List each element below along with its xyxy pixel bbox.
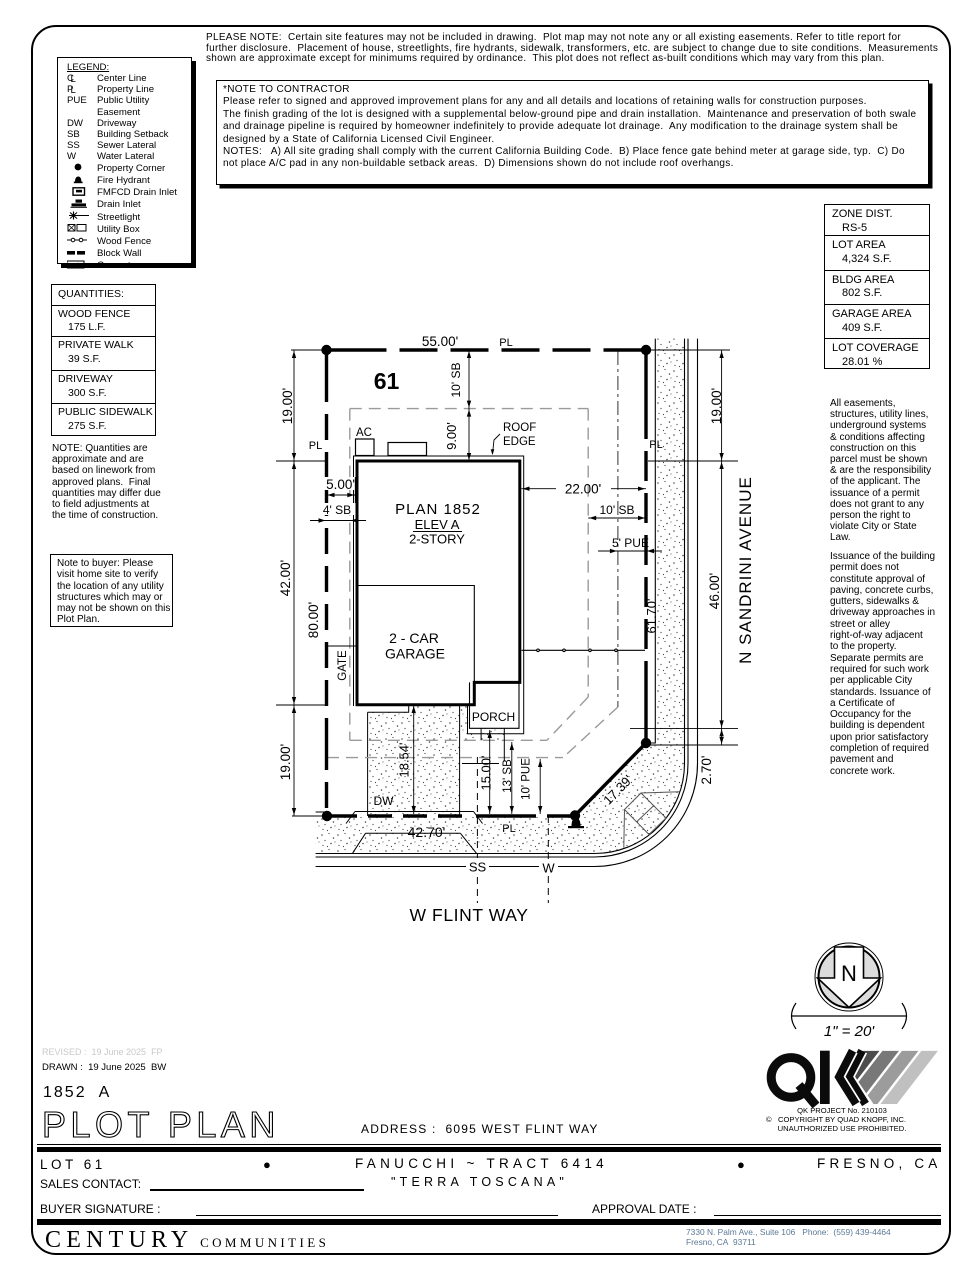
svg-text:GARAGE: GARAGE — [385, 646, 445, 662]
svg-text:GATE: GATE — [337, 650, 349, 681]
svg-text:PL: PL — [499, 337, 512, 349]
svg-text:15.00': 15.00' — [479, 755, 494, 790]
svg-text:19.00': 19.00' — [278, 744, 293, 780]
svg-text:18.54': 18.54' — [397, 742, 412, 777]
svg-text:ELEV A: ELEV A — [415, 517, 460, 532]
svg-text:2.70': 2.70' — [699, 756, 714, 785]
svg-text:10' SB: 10' SB — [449, 363, 463, 398]
svg-text:PORCH: PORCH — [472, 710, 515, 724]
svg-text:PL: PL — [502, 823, 515, 835]
svg-text:4' SB: 4' SB — [323, 503, 351, 517]
svg-text:1" = 20': 1" = 20' — [824, 1023, 875, 1040]
svg-text:PL: PL — [309, 440, 322, 452]
svg-text:5' PUE: 5' PUE — [612, 536, 649, 550]
svg-text:PL: PL — [649, 439, 662, 451]
svg-text:W: W — [542, 861, 555, 876]
svg-text:55.00': 55.00' — [422, 334, 458, 349]
svg-text:80.00': 80.00' — [306, 602, 321, 638]
svg-text:22.00': 22.00' — [565, 482, 601, 497]
svg-text:61.70': 61.70' — [644, 598, 659, 633]
svg-text:2-STORY: 2-STORY — [409, 532, 465, 547]
svg-text:DW: DW — [374, 794, 395, 808]
svg-text:13' SB: 13' SB — [502, 759, 514, 793]
svg-text:EDGE: EDGE — [503, 436, 536, 448]
svg-text:N: N — [841, 961, 857, 986]
svg-text:N SANDRINI AVENUE: N SANDRINI AVENUE — [736, 476, 755, 664]
svg-text:61: 61 — [374, 368, 400, 394]
svg-text:19.00': 19.00' — [709, 388, 724, 424]
svg-text:19.00': 19.00' — [280, 388, 295, 424]
svg-text:10' SB: 10' SB — [600, 503, 635, 517]
svg-text:SS: SS — [469, 860, 487, 875]
svg-text:AC: AC — [356, 427, 372, 439]
svg-text:W FLINT WAY: W FLINT WAY — [409, 905, 528, 925]
svg-text:9.00': 9.00' — [444, 422, 459, 450]
svg-text:42.00': 42.00' — [278, 560, 293, 596]
svg-text:42.70': 42.70' — [408, 824, 446, 840]
svg-text:PLAN 1852: PLAN 1852 — [395, 501, 481, 518]
svg-text:ROOF: ROOF — [503, 422, 536, 434]
svg-text:10' PUE: 10' PUE — [521, 758, 533, 800]
svg-text:5.00': 5.00' — [326, 477, 355, 492]
svg-text:2 - CAR: 2 - CAR — [389, 630, 439, 646]
svg-text:46.00': 46.00' — [707, 573, 722, 609]
